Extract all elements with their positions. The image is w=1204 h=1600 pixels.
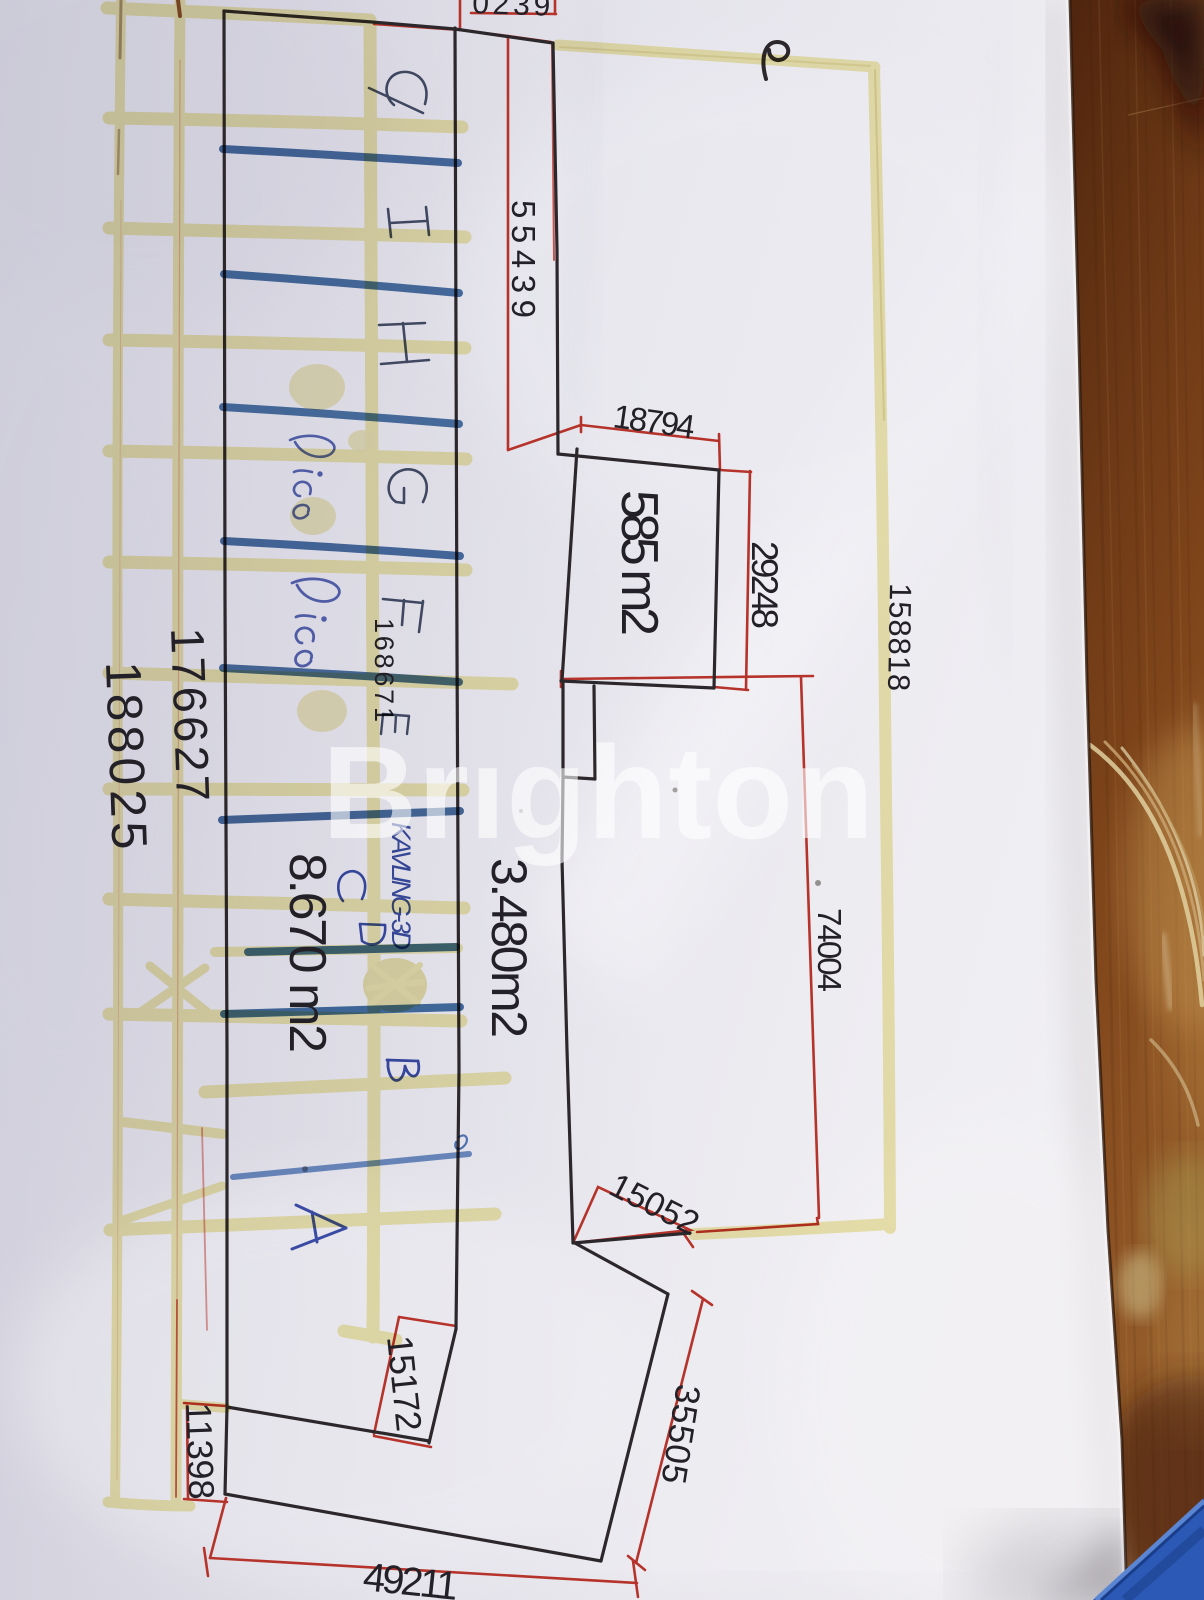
svg-text:8.670 m2: 8.670 m2 [278, 853, 336, 1053]
svg-text:29248: 29248 [744, 541, 785, 629]
svg-text:Brıghton: Brıghton [322, 719, 870, 866]
svg-text:585 m2: 585 m2 [610, 490, 668, 636]
svg-text:3.480m2: 3.480m2 [481, 858, 537, 1038]
svg-text:158818: 158818 [881, 583, 918, 692]
svg-text:74004: 74004 [811, 908, 848, 992]
svg-text:11398: 11398 [178, 1402, 222, 1500]
svg-text:55439: 55439 [505, 200, 542, 318]
